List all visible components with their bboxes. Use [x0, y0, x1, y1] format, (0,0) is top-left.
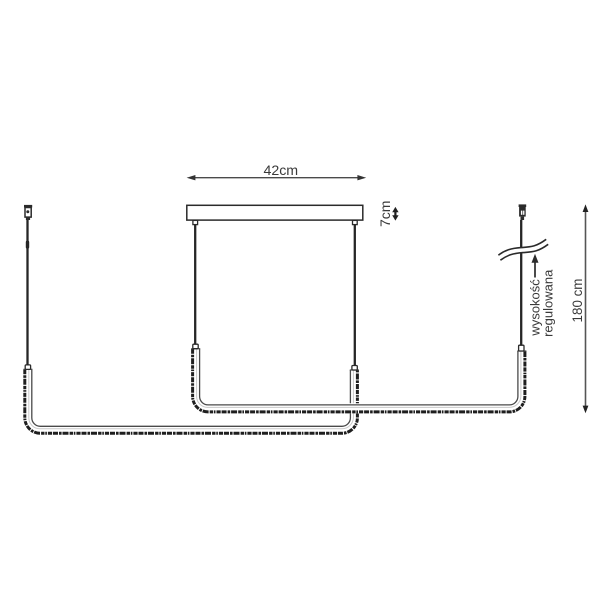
svg-text:42cm: 42cm — [263, 163, 298, 179]
svg-text:7cm: 7cm — [377, 201, 393, 227]
svg-text:regulowana: regulowana — [540, 269, 555, 337]
svg-text:180 cm: 180 cm — [570, 279, 585, 323]
